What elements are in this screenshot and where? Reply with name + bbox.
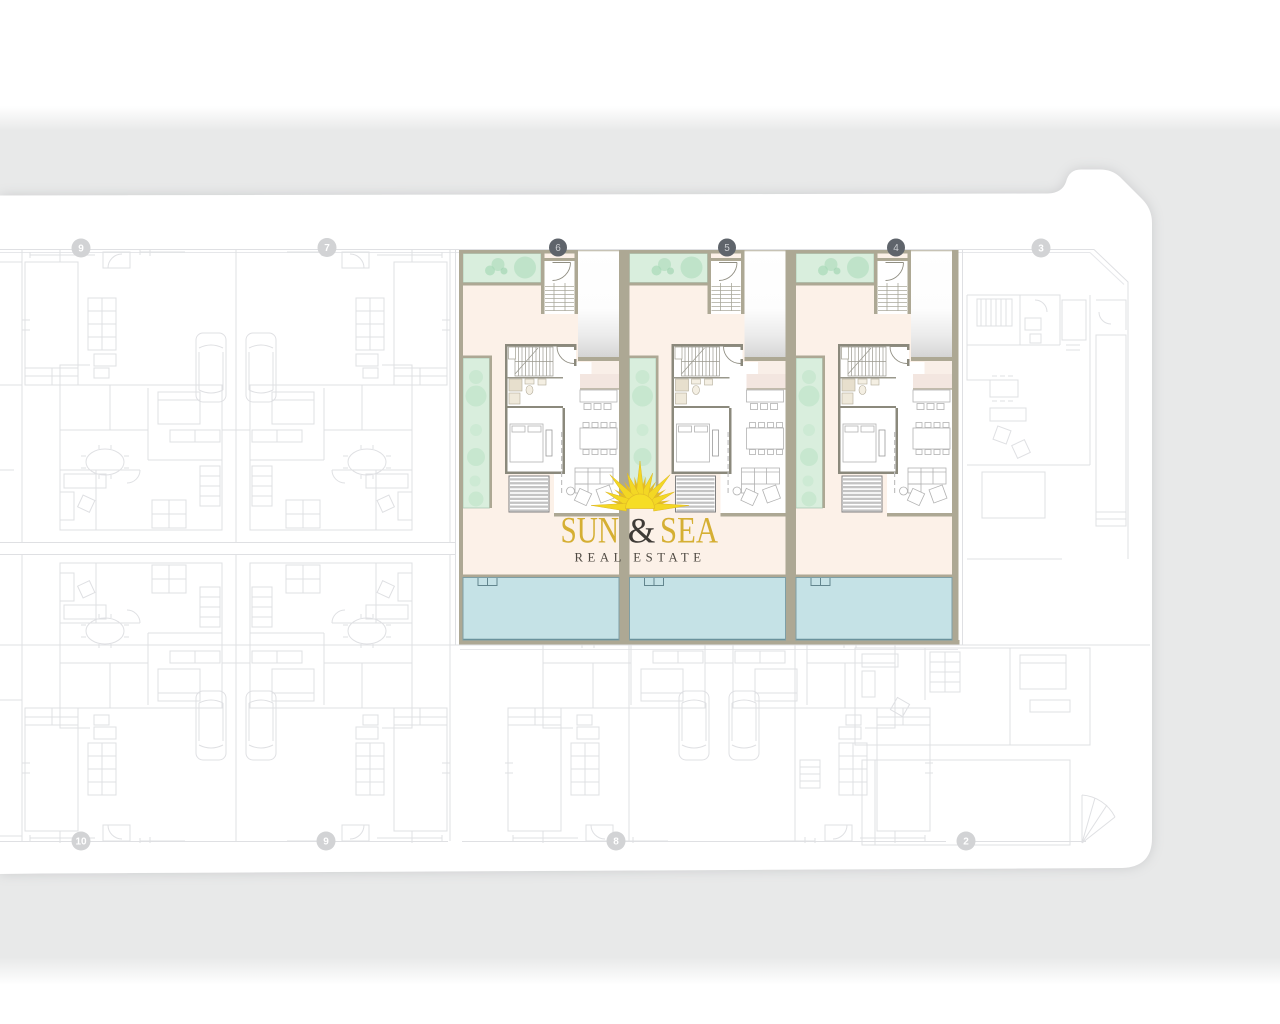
- svg-text:6: 6: [555, 243, 561, 254]
- svg-text:SUN: SUN: [561, 511, 620, 552]
- svg-text:10: 10: [75, 837, 87, 848]
- svg-text:&: &: [628, 511, 656, 551]
- svg-text:REAL ESTATE: REAL ESTATE: [575, 551, 706, 565]
- svg-text:3: 3: [1038, 244, 1044, 255]
- svg-text:5: 5: [724, 243, 730, 254]
- svg-text:8: 8: [613, 837, 619, 848]
- svg-text:2: 2: [963, 837, 969, 848]
- svg-text:7: 7: [324, 243, 330, 254]
- svg-text:9: 9: [323, 837, 329, 848]
- svg-text:9: 9: [78, 244, 84, 255]
- svg-text:4: 4: [893, 243, 899, 254]
- svg-text:SEA: SEA: [660, 511, 718, 552]
